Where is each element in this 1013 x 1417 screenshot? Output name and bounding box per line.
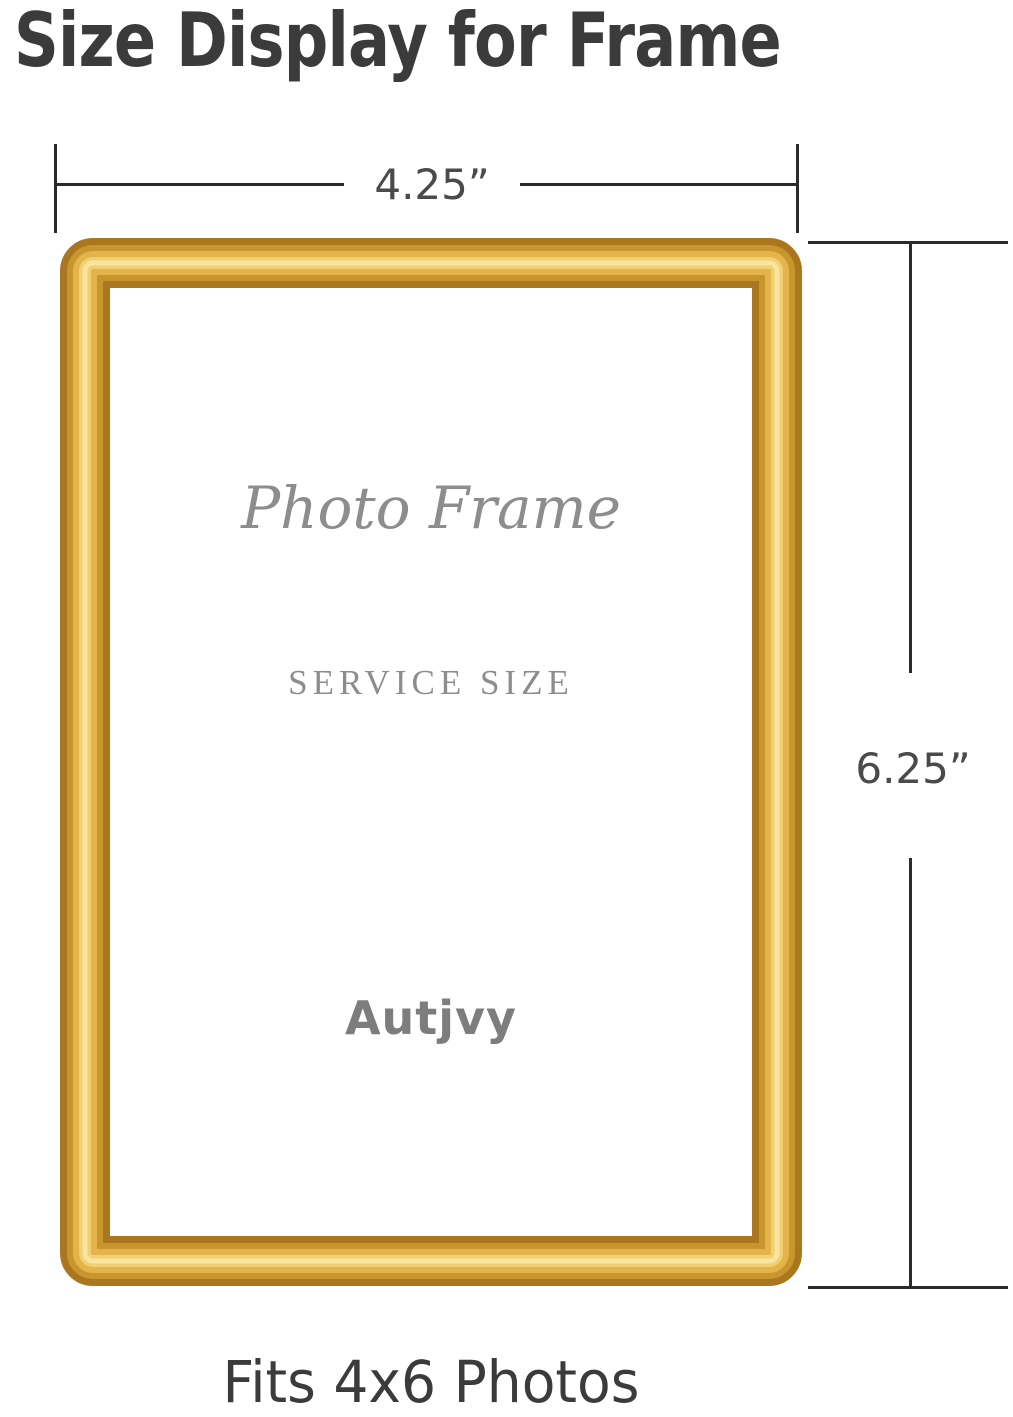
width-dimension-label: 4.25” (344, 160, 520, 209)
height-dimension-line-bottom (909, 858, 912, 1288)
height-dimension-tick-bottom (808, 1286, 1008, 1289)
frame-tube-sheen (85, 263, 777, 1261)
page-title: Size Display for Frame (14, 0, 781, 84)
height-dimension-line-top (909, 243, 912, 673)
frame-tube-bright (85, 263, 777, 1261)
frame-size-diagram: Size Display for Frame 4.25” 6.25” Photo… (0, 0, 1013, 1417)
width-dimension-line-right (520, 183, 798, 186)
frame-insert-service-size-text: SERVICE SIZE (60, 660, 802, 706)
frame-tube-base (85, 263, 777, 1261)
width-dimension-line-left (56, 183, 344, 186)
frame-insert-script-text: Photo Frame (60, 468, 802, 548)
fits-photos-caption: Fits 4x6 Photos (79, 1348, 784, 1416)
frame-tube-highlight (85, 263, 777, 1261)
frame-insert-brand-text: Autjvy (60, 990, 802, 1046)
width-dimension-tick-right (796, 144, 799, 233)
frame-tube-mid (85, 263, 777, 1261)
height-dimension-tick-top (808, 241, 1008, 244)
width-dimension-tick-left (54, 144, 57, 233)
height-dimension-label: 6.25” (833, 744, 993, 793)
gold-photo-frame (60, 238, 802, 1286)
